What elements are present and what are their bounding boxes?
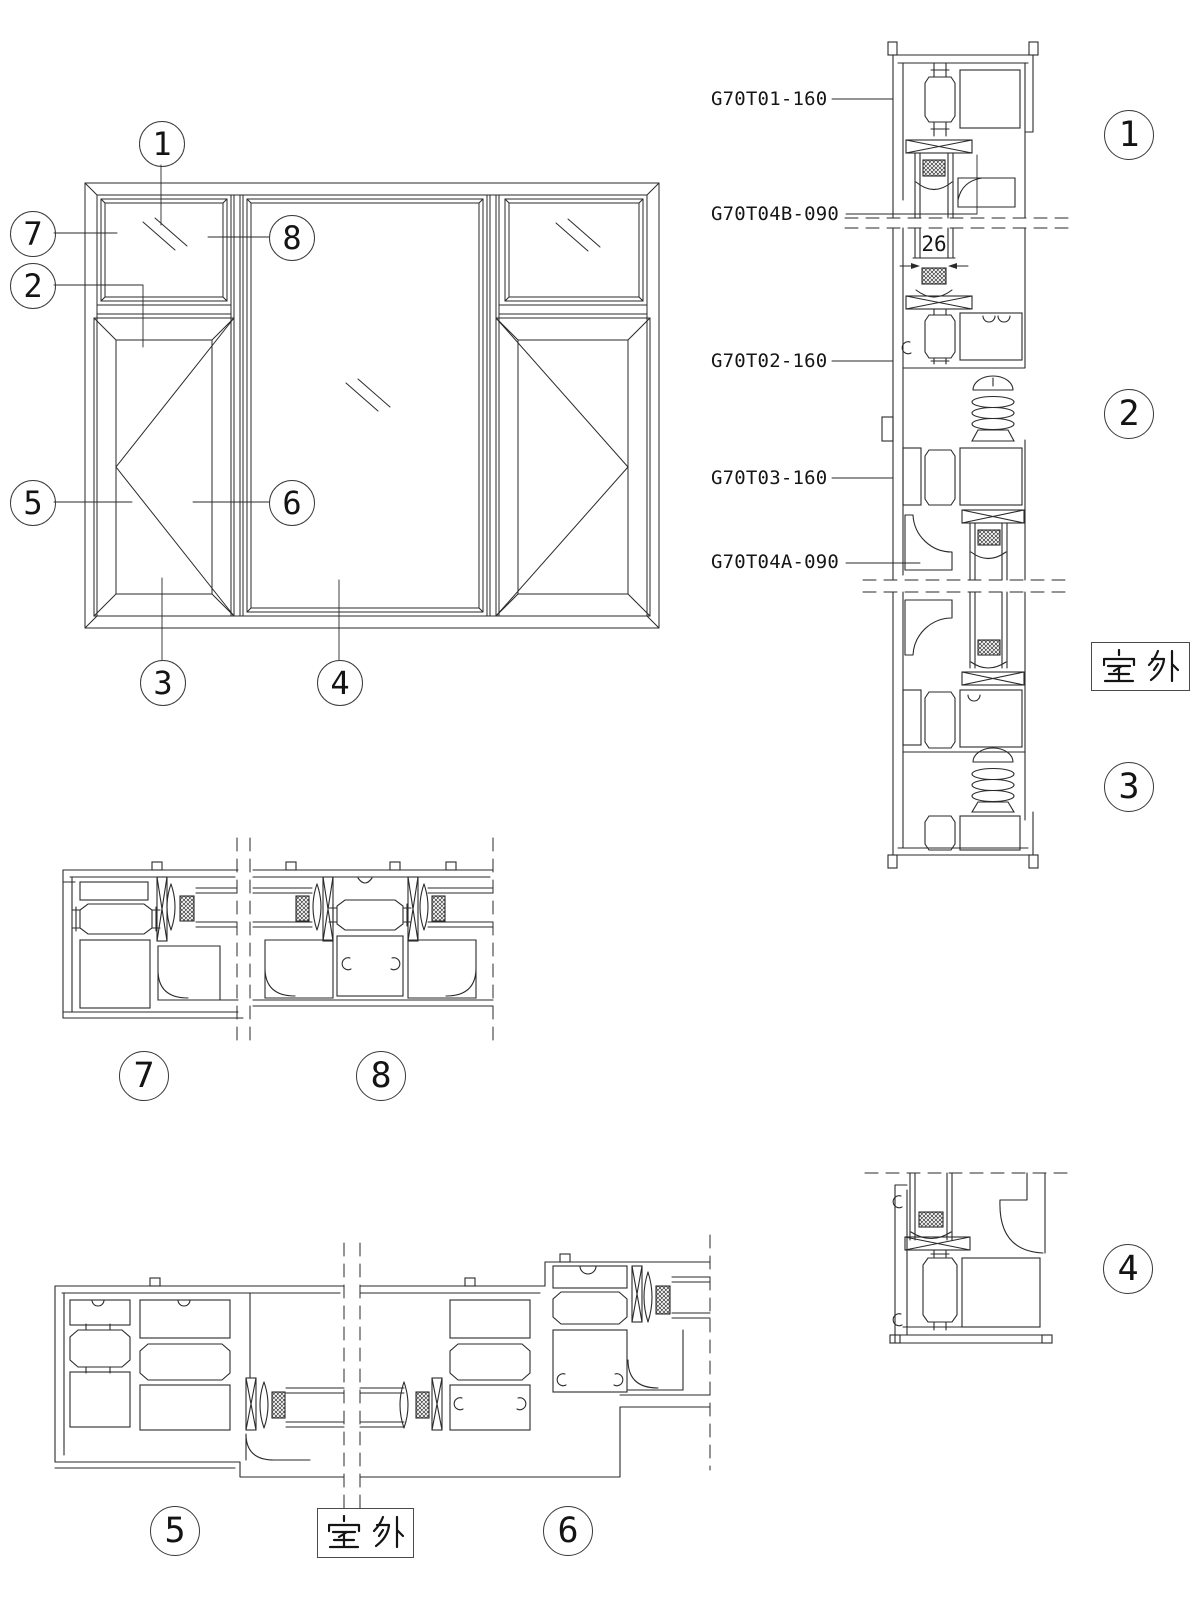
elevation-callout-7: 7 xyxy=(10,211,56,257)
elevation-callout-2: 2 xyxy=(10,263,56,309)
section-marker-1: 1 xyxy=(1104,110,1154,160)
horizontal-section-5-6 xyxy=(55,1254,710,1477)
section-1-profile xyxy=(888,42,1038,218)
outdoor-label-box-bottom xyxy=(317,1508,414,1558)
horizontal-section-7-8 xyxy=(63,862,493,1018)
part-label-g70t03: G70T03-160 xyxy=(711,467,827,489)
part-label-g70t04a: G70T04A-090 xyxy=(711,551,839,573)
section-marker-8: 8 xyxy=(356,1051,406,1101)
dimension-26: 26 xyxy=(914,232,954,256)
part-label-g70t04b: G70T04B-090 xyxy=(711,203,839,225)
section-marker-6: 6 xyxy=(543,1506,593,1556)
section-2-profile xyxy=(882,228,1025,580)
section-marker-5: 5 xyxy=(150,1506,200,1556)
elevation-callout-5: 5 xyxy=(10,480,56,526)
section-marker-3: 3 xyxy=(1104,762,1154,812)
elevation-callout-4: 4 xyxy=(317,660,363,706)
part-label-g70t01: G70T01-160 xyxy=(711,88,827,110)
section-marker-2: 2 xyxy=(1104,389,1154,439)
break-lines xyxy=(237,218,1073,1510)
section-4-profile xyxy=(890,1173,1052,1343)
part-label-g70t02: G70T02-160 xyxy=(711,350,827,372)
section-3-profile xyxy=(888,592,1038,868)
elevation-drawing xyxy=(85,183,659,628)
elevation-callout-1: 1 xyxy=(139,121,185,167)
elevation-callout-8: 8 xyxy=(269,215,315,261)
elevation-callout-6: 6 xyxy=(269,480,315,526)
outdoor-label-box-right xyxy=(1091,642,1190,691)
drawing-canvas: G70T01-160 G70T04B-090 G70T02-160 G70T03… xyxy=(0,0,1200,1604)
drawing-linework xyxy=(0,0,1200,1604)
elevation-callout-3: 3 xyxy=(140,660,186,706)
section-marker-7: 7 xyxy=(119,1051,169,1101)
outdoor-glyphs xyxy=(1103,649,1179,685)
section-marker-4: 4 xyxy=(1103,1244,1153,1294)
outdoor-glyphs xyxy=(328,1515,404,1551)
